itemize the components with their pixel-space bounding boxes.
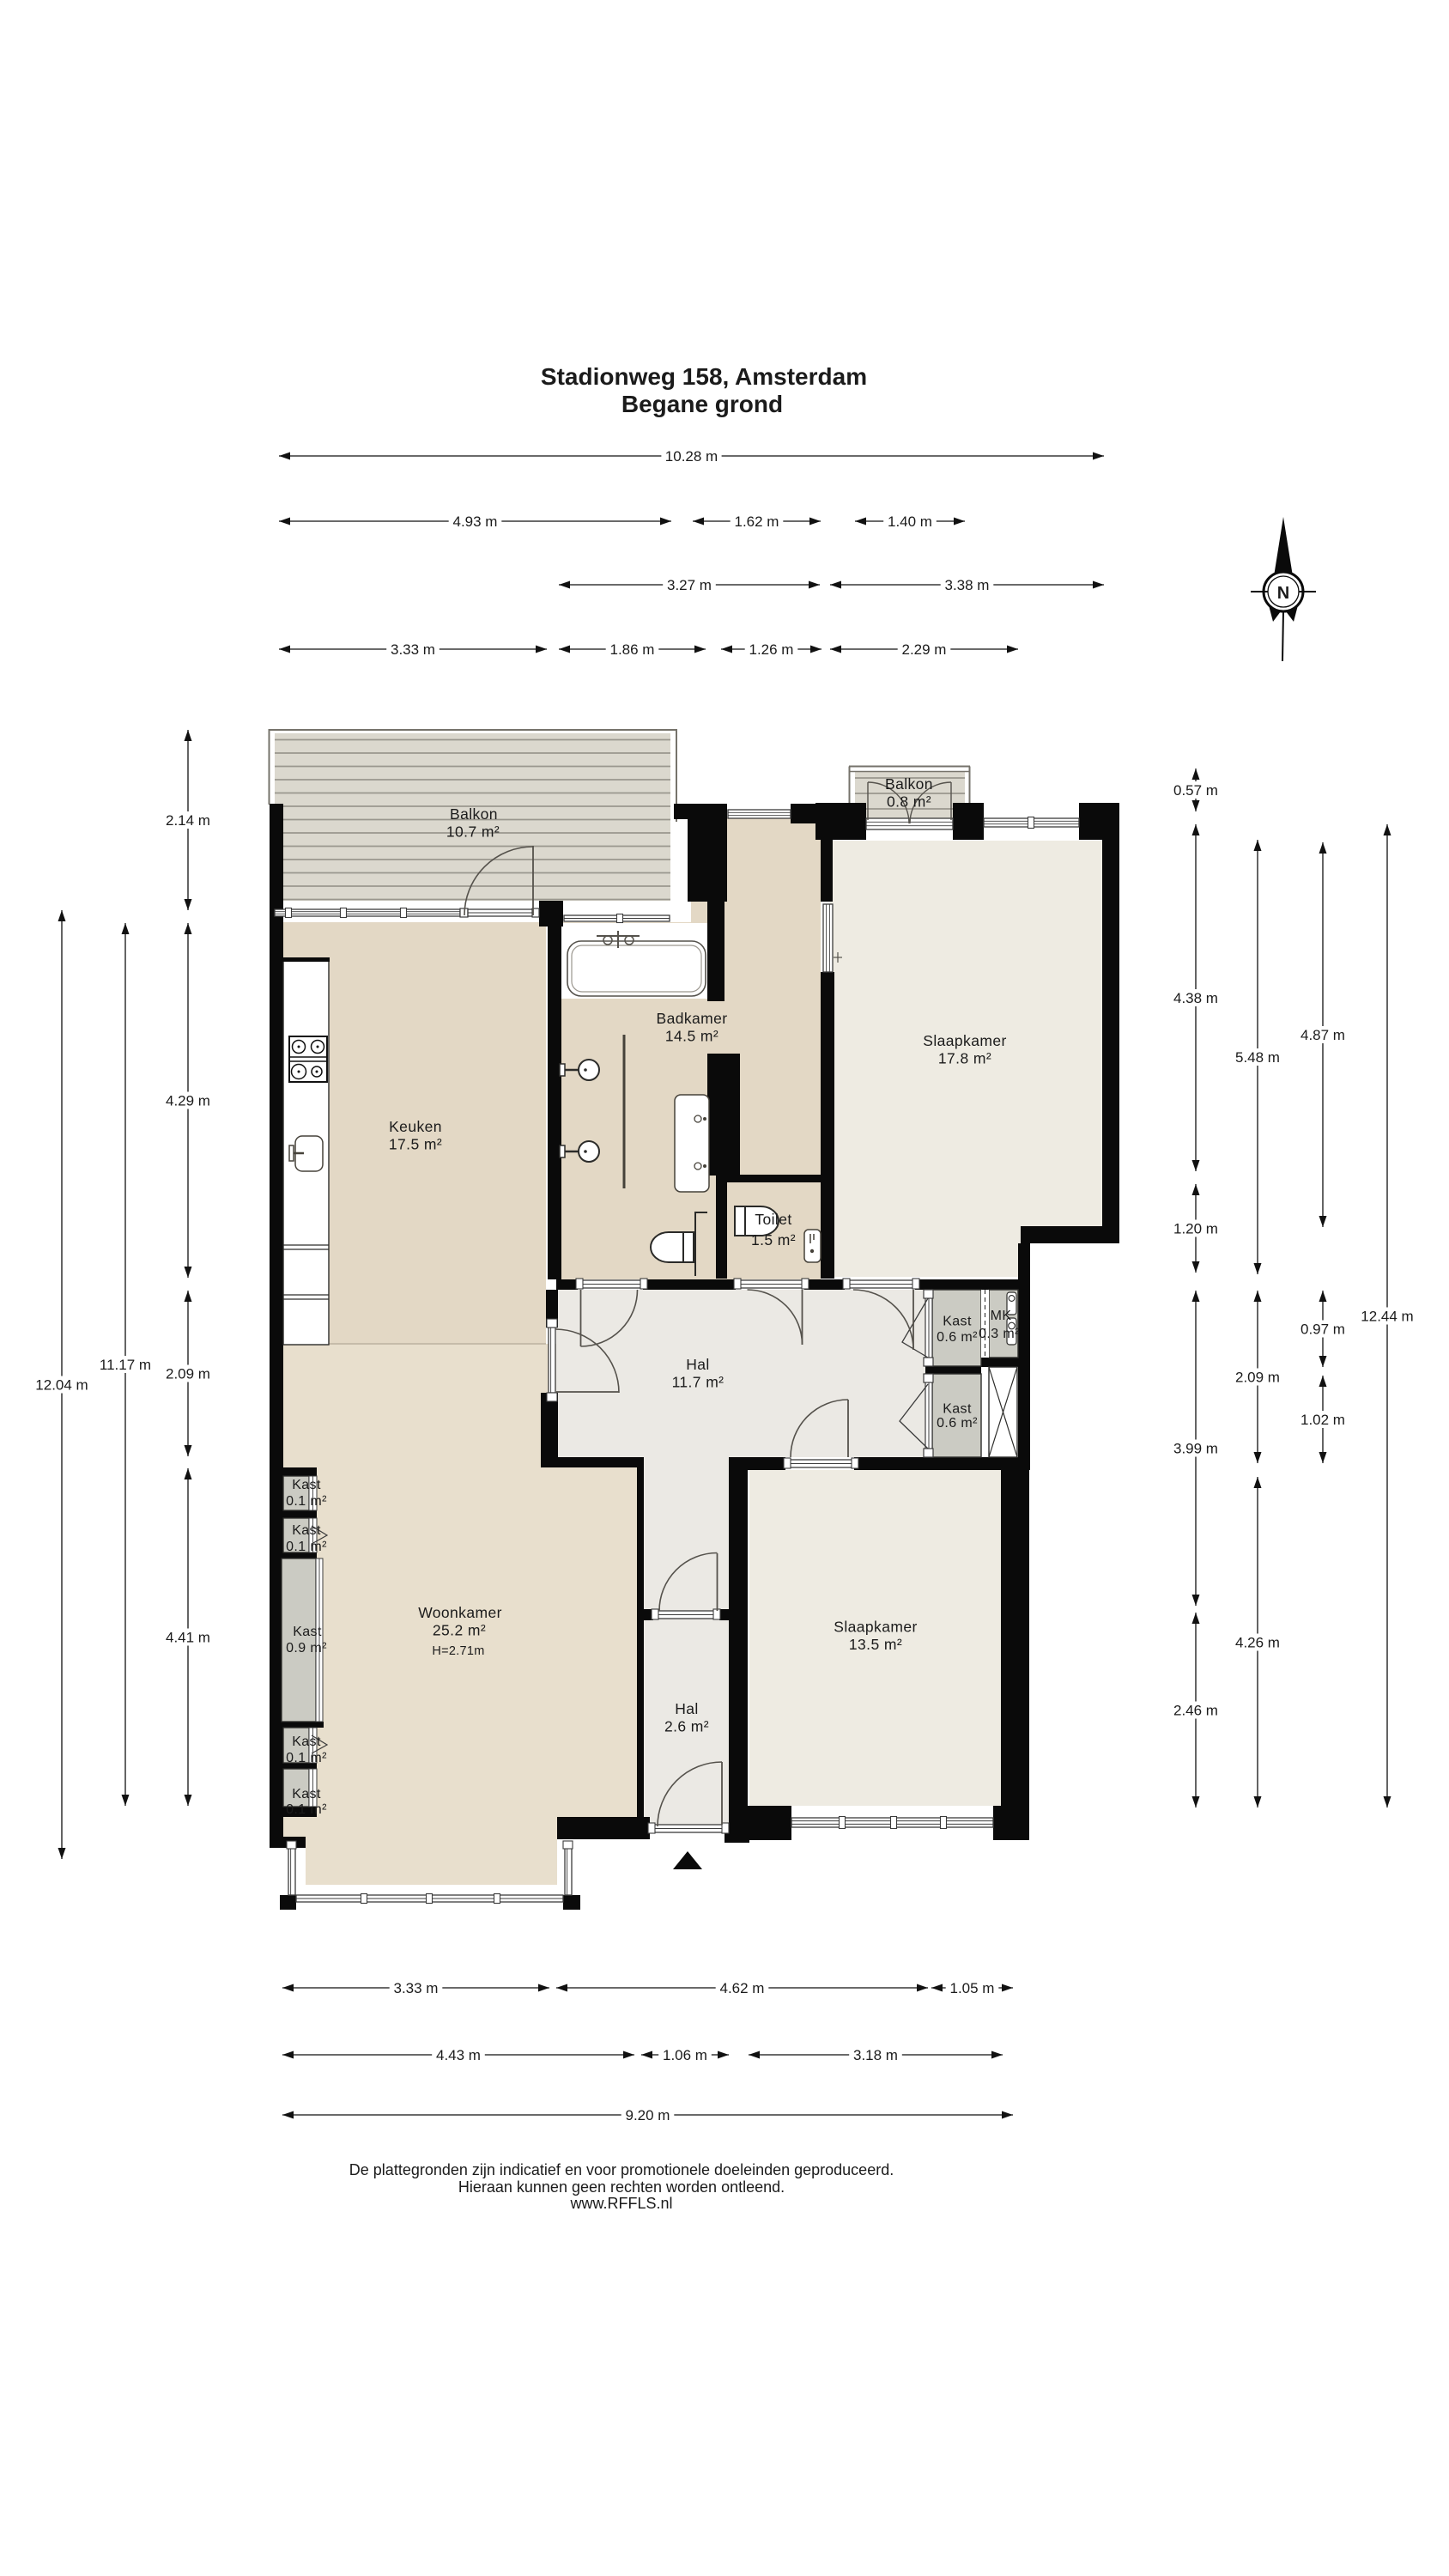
svg-text:De plattegronden zijn indicati: De plattegronden zijn indicatief en voor… xyxy=(349,2161,894,2178)
svg-text:Badkamer: Badkamer xyxy=(657,1010,728,1027)
svg-text:0.97 m: 0.97 m xyxy=(1300,1321,1345,1338)
svg-text:2.09 m: 2.09 m xyxy=(166,1366,210,1382)
svg-text:Hal: Hal xyxy=(675,1700,698,1717)
svg-text:4.87 m: 4.87 m xyxy=(1300,1027,1345,1043)
svg-text:2.09 m: 2.09 m xyxy=(1235,1370,1280,1386)
svg-text:Keuken: Keuken xyxy=(389,1118,442,1135)
svg-text:H=2.71m: H=2.71m xyxy=(432,1644,484,1658)
svg-text:1.20 m: 1.20 m xyxy=(1173,1221,1218,1237)
svg-text:17.8 m²: 17.8 m² xyxy=(938,1050,991,1067)
svg-text:Woonkamer: Woonkamer xyxy=(418,1604,502,1621)
svg-text:5.48 m: 5.48 m xyxy=(1235,1049,1280,1066)
svg-text:1.40 m: 1.40 m xyxy=(888,513,932,530)
svg-text:1.02 m: 1.02 m xyxy=(1300,1412,1345,1428)
svg-text:Slaapkamer: Slaapkamer xyxy=(923,1032,1006,1049)
svg-text:Kast: Kast xyxy=(292,1787,321,1801)
svg-text:4.41 m: 4.41 m xyxy=(166,1630,210,1646)
svg-text:4.38 m: 4.38 m xyxy=(1173,990,1218,1006)
svg-text:Kast: Kast xyxy=(943,1315,972,1329)
svg-text:0.8 m²: 0.8 m² xyxy=(887,793,931,811)
svg-text:0.1 m²: 0.1 m² xyxy=(286,1751,327,1765)
svg-text:2.6 m²: 2.6 m² xyxy=(664,1718,709,1735)
svg-text:Balkon: Balkon xyxy=(885,775,933,793)
svg-text:10.28 m: 10.28 m xyxy=(665,448,718,465)
svg-text:0.57 m: 0.57 m xyxy=(1173,782,1218,799)
svg-text:14.5 m²: 14.5 m² xyxy=(665,1028,718,1045)
svg-text:Kast: Kast xyxy=(292,1478,321,1492)
svg-text:12.44 m: 12.44 m xyxy=(1361,1309,1413,1325)
svg-text:11.7 m²: 11.7 m² xyxy=(672,1374,724,1391)
svg-text:1.62 m: 1.62 m xyxy=(735,513,779,530)
svg-text:Hal: Hal xyxy=(686,1356,709,1373)
svg-text:4.93 m: 4.93 m xyxy=(453,513,498,530)
svg-text:Stadionweg 158, Amsterdam: Stadionweg 158, Amsterdam xyxy=(541,363,867,390)
svg-text:Kast: Kast xyxy=(293,1625,322,1639)
svg-text:0.1 m²: 0.1 m² xyxy=(286,1802,327,1817)
svg-text:10.7 m²: 10.7 m² xyxy=(446,823,500,841)
svg-text:9.20 m: 9.20 m xyxy=(626,2107,670,2123)
svg-text:2.46 m: 2.46 m xyxy=(1173,1703,1218,1719)
svg-text:3.33 m: 3.33 m xyxy=(391,641,435,658)
svg-text:N: N xyxy=(1277,584,1289,603)
svg-text:Kast: Kast xyxy=(292,1735,321,1749)
svg-text:4.62 m: 4.62 m xyxy=(720,1980,765,1996)
svg-text:13.5 m²: 13.5 m² xyxy=(849,1636,902,1653)
svg-text:2.29 m: 2.29 m xyxy=(902,641,947,658)
svg-text:www.RFFLS.nl: www.RFFLS.nl xyxy=(569,2195,672,2212)
svg-text:4.26 m: 4.26 m xyxy=(1235,1635,1280,1651)
svg-text:Slaapkamer: Slaapkamer xyxy=(834,1619,917,1636)
svg-text:0.3 m²: 0.3 m² xyxy=(979,1327,1020,1341)
svg-text:MK: MK xyxy=(991,1309,1012,1323)
svg-text:Toilet: Toilet xyxy=(755,1211,791,1228)
svg-text:11.17 m: 11.17 m xyxy=(100,1357,151,1373)
svg-text:2.14 m: 2.14 m xyxy=(166,812,210,829)
svg-text:Begane grond: Begane grond xyxy=(621,391,783,417)
svg-text:17.5 m²: 17.5 m² xyxy=(389,1136,442,1153)
svg-text:0.1 m²: 0.1 m² xyxy=(286,1540,327,1554)
svg-text:4.43 m: 4.43 m xyxy=(436,2047,481,2063)
svg-text:1.05 m: 1.05 m xyxy=(950,1980,995,1996)
svg-text:3.18 m: 3.18 m xyxy=(853,2047,898,2063)
svg-text:0.6 m²: 0.6 m² xyxy=(937,1330,978,1345)
svg-text:3.38 m: 3.38 m xyxy=(945,577,990,593)
svg-text:Balkon: Balkon xyxy=(450,805,498,823)
svg-text:3.33 m: 3.33 m xyxy=(394,1980,439,1996)
svg-text:3.27 m: 3.27 m xyxy=(667,577,712,593)
svg-text:1.5 m²: 1.5 m² xyxy=(751,1231,796,1249)
svg-text:25.2 m²: 25.2 m² xyxy=(433,1622,486,1639)
svg-text:1.86 m: 1.86 m xyxy=(610,641,655,658)
svg-text:Kast: Kast xyxy=(943,1402,972,1417)
svg-text:1.06 m: 1.06 m xyxy=(663,2047,707,2063)
svg-text:3.99 m: 3.99 m xyxy=(1173,1441,1218,1457)
svg-text:12.04 m: 12.04 m xyxy=(35,1377,88,1394)
svg-text:0.1 m²: 0.1 m² xyxy=(286,1494,327,1509)
svg-text:0.6 m²: 0.6 m² xyxy=(937,1416,978,1431)
svg-text:4.29 m: 4.29 m xyxy=(166,1093,210,1109)
svg-text:1.26 m: 1.26 m xyxy=(749,641,794,658)
svg-text:0.9 m²: 0.9 m² xyxy=(286,1641,327,1656)
svg-text:Hieraan kunnen geen rechten wo: Hieraan kunnen geen rechten worden ontle… xyxy=(458,2178,785,2196)
svg-text:Kast: Kast xyxy=(292,1523,321,1538)
